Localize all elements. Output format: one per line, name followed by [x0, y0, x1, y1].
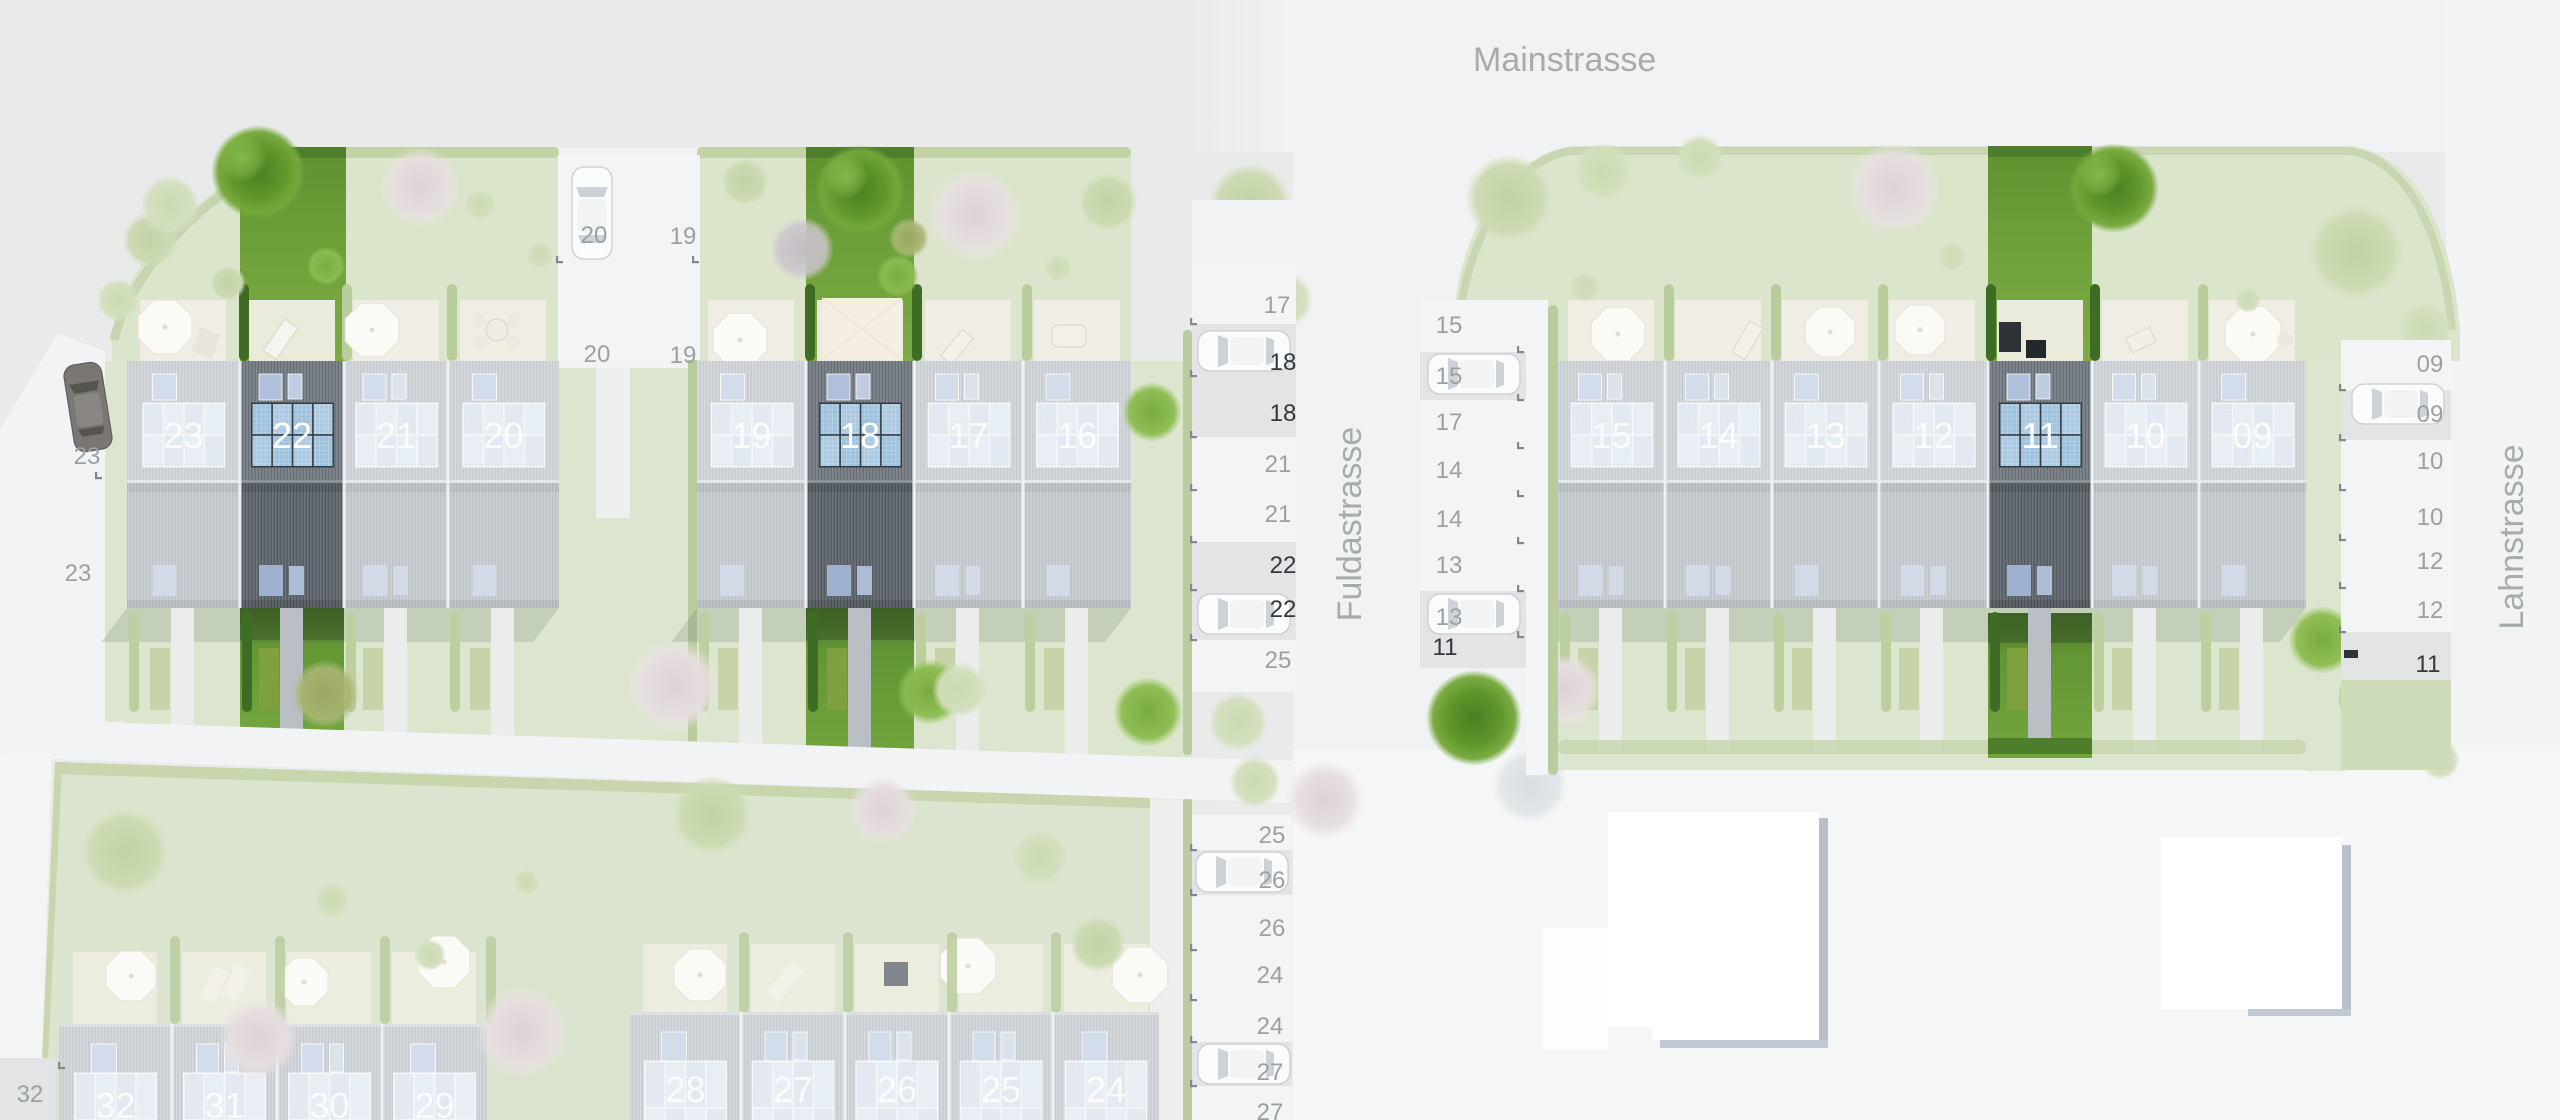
- svg-text:23: 23: [163, 415, 203, 456]
- svg-text:Fuldastrasse: Fuldastrasse: [1331, 427, 1369, 622]
- svg-text:26: 26: [1259, 867, 1286, 894]
- svg-text:18: 18: [840, 415, 880, 456]
- svg-text:17: 17: [1436, 409, 1463, 436]
- svg-text:14: 14: [1698, 415, 1738, 456]
- svg-text:12: 12: [1913, 415, 1953, 456]
- svg-text:14: 14: [1436, 506, 1463, 533]
- svg-text:18: 18: [1270, 349, 1297, 376]
- svg-text:22: 22: [1270, 552, 1297, 579]
- svg-text:20: 20: [584, 341, 611, 368]
- svg-text:32: 32: [95, 1085, 135, 1120]
- svg-text:Mainstrasse: Mainstrasse: [1473, 41, 1656, 79]
- svg-text:23: 23: [74, 443, 101, 470]
- svg-text:12: 12: [2417, 597, 2444, 624]
- svg-text:13: 13: [1436, 604, 1463, 631]
- svg-text:21: 21: [1265, 451, 1292, 478]
- svg-text:32: 32: [17, 1081, 44, 1108]
- svg-text:27: 27: [773, 1069, 813, 1110]
- svg-text:13: 13: [1436, 552, 1463, 579]
- svg-text:24: 24: [1086, 1069, 1126, 1110]
- svg-text:16: 16: [1057, 415, 1097, 456]
- svg-text:22: 22: [1270, 596, 1297, 623]
- svg-text:25: 25: [1259, 822, 1286, 849]
- svg-text:19: 19: [670, 342, 697, 369]
- svg-text:27: 27: [1257, 1059, 1284, 1086]
- svg-text:17: 17: [948, 415, 988, 456]
- svg-text:14: 14: [1436, 457, 1463, 484]
- svg-text:27: 27: [1257, 1099, 1284, 1120]
- svg-text:15: 15: [1591, 415, 1631, 456]
- svg-text:09: 09: [2232, 415, 2272, 456]
- svg-text:29: 29: [414, 1085, 454, 1120]
- svg-text:13: 13: [1805, 415, 1845, 456]
- svg-text:28: 28: [665, 1069, 705, 1110]
- svg-text:19: 19: [731, 415, 771, 456]
- svg-text:25: 25: [1265, 647, 1292, 674]
- svg-text:10: 10: [2417, 504, 2444, 531]
- svg-text:11: 11: [1433, 634, 1458, 661]
- svg-text:21: 21: [376, 415, 416, 456]
- svg-text:24: 24: [1257, 1013, 1284, 1040]
- svg-text:10: 10: [2417, 448, 2444, 475]
- svg-text:22: 22: [272, 415, 312, 456]
- svg-text:11: 11: [2416, 651, 2441, 678]
- svg-text:Lahnstrasse: Lahnstrasse: [2493, 444, 2531, 629]
- svg-text:21: 21: [1265, 501, 1292, 528]
- svg-text:15: 15: [1436, 363, 1463, 390]
- svg-text:20: 20: [483, 415, 523, 456]
- svg-text:19: 19: [670, 223, 697, 250]
- svg-text:23: 23: [65, 560, 92, 587]
- svg-text:30: 30: [309, 1085, 349, 1120]
- svg-text:11: 11: [2021, 415, 2058, 456]
- svg-text:15: 15: [1436, 312, 1463, 339]
- svg-text:20: 20: [581, 222, 608, 249]
- svg-text:26: 26: [877, 1069, 917, 1110]
- svg-text:25: 25: [981, 1069, 1021, 1110]
- svg-text:12: 12: [2417, 548, 2444, 575]
- svg-text:31: 31: [204, 1085, 244, 1120]
- svg-text:09: 09: [2417, 401, 2444, 428]
- svg-text:17: 17: [1264, 292, 1291, 319]
- svg-text:24: 24: [1257, 962, 1284, 989]
- svg-text:18: 18: [1270, 400, 1297, 427]
- svg-text:09: 09: [2417, 351, 2444, 378]
- svg-text:10: 10: [2125, 415, 2165, 456]
- svg-text:26: 26: [1259, 915, 1286, 942]
